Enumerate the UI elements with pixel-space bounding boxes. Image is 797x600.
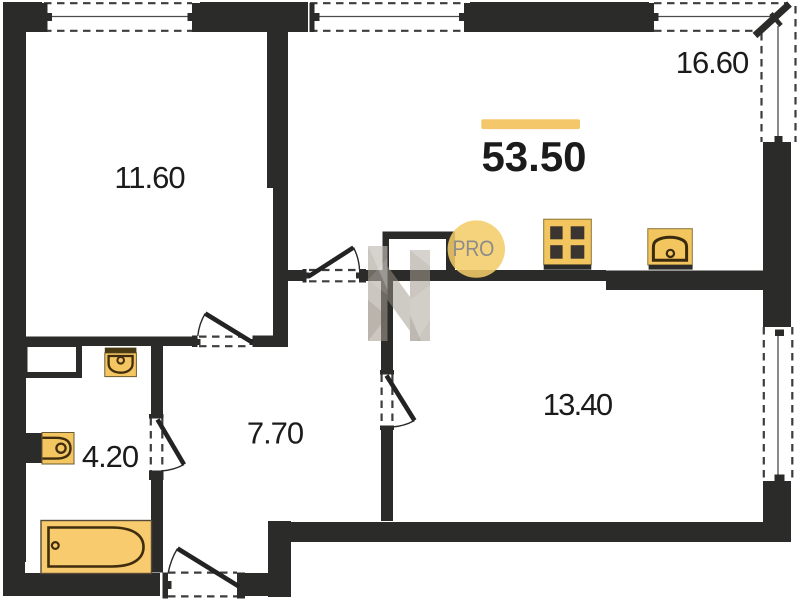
svg-text:7.70: 7.70 [247, 416, 304, 451]
svg-text:13.40: 13.40 [543, 387, 613, 422]
svg-text:4.20: 4.20 [82, 439, 139, 474]
svg-text:53.50: 53.50 [481, 133, 586, 180]
svg-text:11.60: 11.60 [114, 160, 185, 195]
svg-text:16.60: 16.60 [676, 45, 749, 80]
svg-text:PRO: PRO [453, 237, 495, 262]
